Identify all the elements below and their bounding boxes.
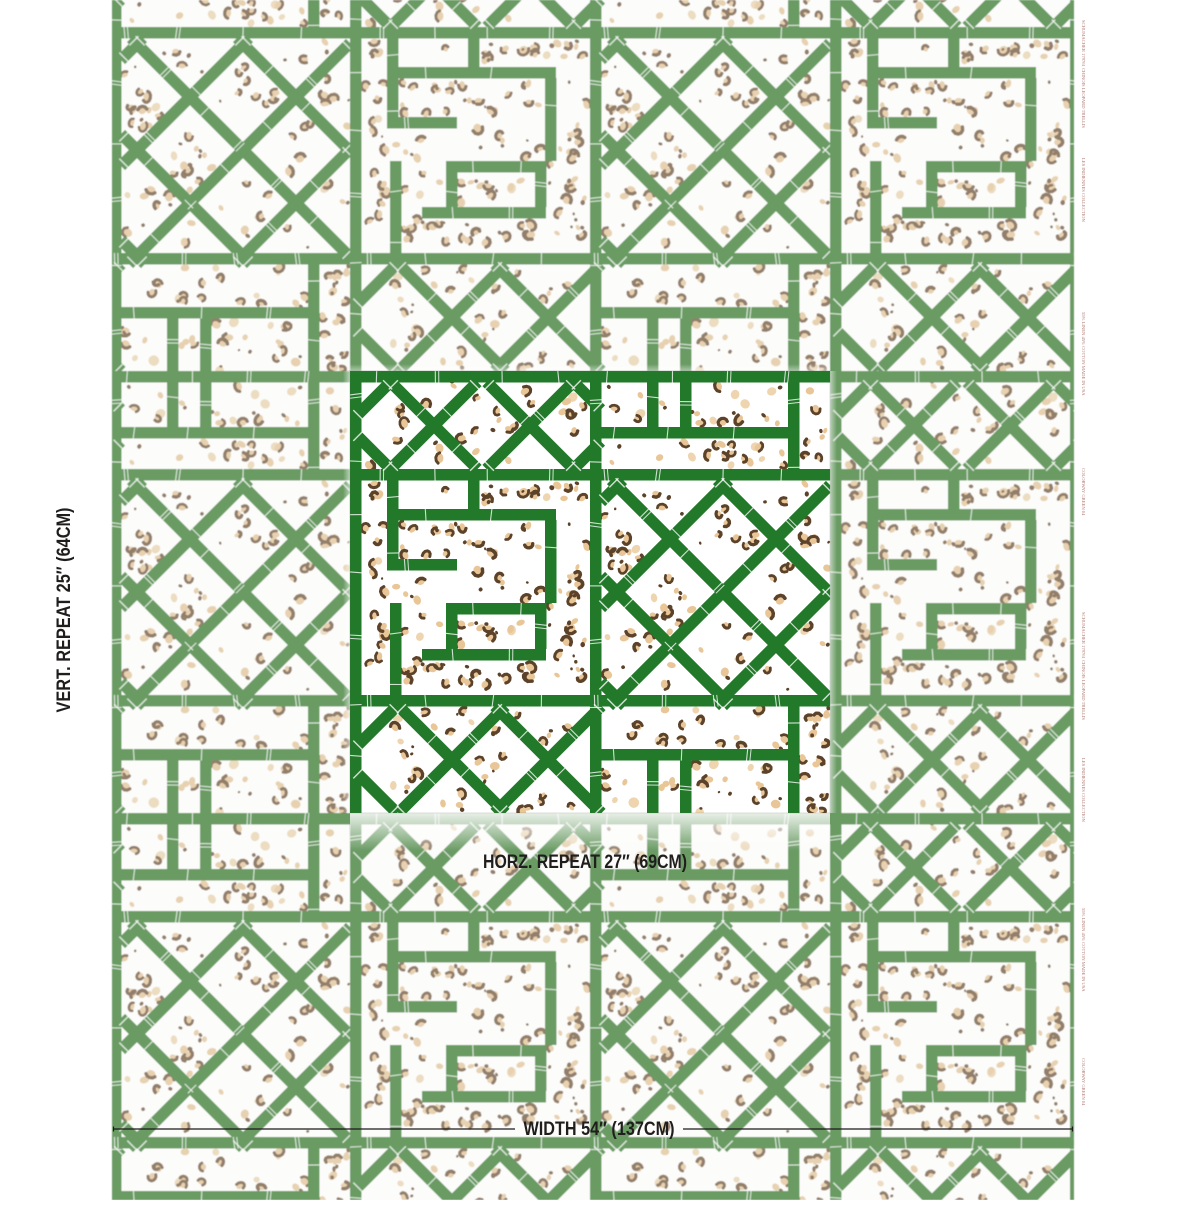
svg-text:55% LINEN 45% COTTON MADE IN: 55% LINEN 45% COTTON MADE IN USA — [1081, 312, 1086, 396]
svg-text:VERT. REPEAT 25″ (64CM): VERT. REPEAT 25″ (64CM) — [54, 508, 75, 713]
svg-text:LES INDIENNES COLLECTION: LES INDIENNES COLLECTION — [1081, 158, 1086, 222]
svg-text:SCHUMACHER 179761 CHINOIS LEOP: SCHUMACHER 179761 CHINOIS LEOPARD TRELLI… — [1081, 20, 1086, 128]
svg-text:LES INDIENNES COLLECTION: LES INDIENNES COLLECTION — [1081, 758, 1086, 822]
svg-text:COLORWAY GREEN 04: COLORWAY GREEN 04 — [1081, 468, 1086, 516]
svg-text:WIDTH 54″ (137CM): WIDTH 54″ (137CM) — [524, 1119, 675, 1140]
svg-text:COLORWAY GREEN 04: COLORWAY GREEN 04 — [1081, 1058, 1086, 1106]
svg-text:SCHUMACHER 179761 CHINOIS LEOP: SCHUMACHER 179761 CHINOIS LEOPARD TRELLI… — [1081, 612, 1086, 720]
svg-text:55% LINEN 45% COTTON MADE IN: 55% LINEN 45% COTTON MADE IN USA — [1081, 908, 1086, 992]
svg-text:HORZ. REPEAT 27″ (69CM): HORZ. REPEAT 27″ (69CM) — [483, 852, 687, 873]
